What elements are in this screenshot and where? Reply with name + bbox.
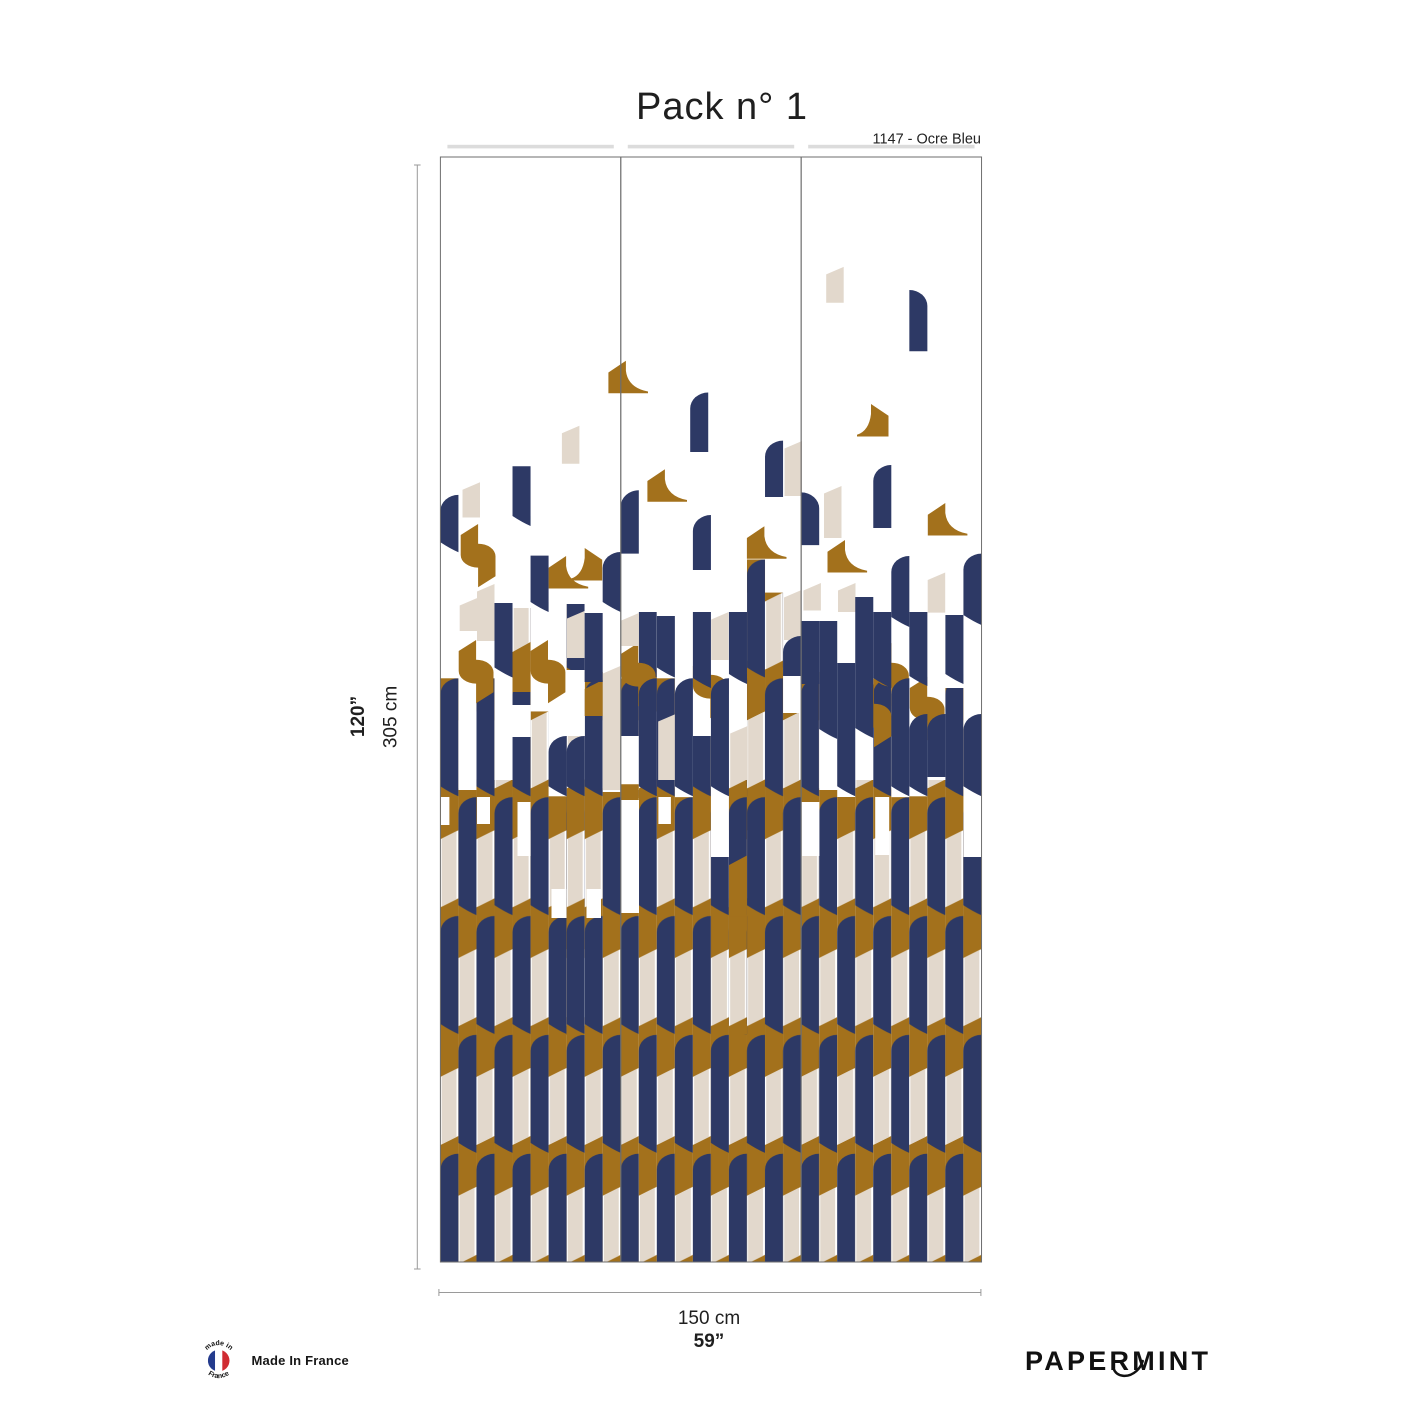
svg-text:59”: 59”: [694, 1331, 725, 1352]
svg-text:PAPERMINT: PAPERMINT: [1025, 1346, 1209, 1376]
svg-text:150 cm: 150 cm: [678, 1308, 740, 1329]
svg-text:305 cm: 305 cm: [381, 686, 402, 748]
svg-text:Pack n° 1: Pack n° 1: [636, 86, 808, 128]
svg-text:Made In France: Made In France: [252, 1353, 349, 1368]
svg-text:120”: 120”: [348, 696, 369, 737]
svg-text:1147 - Ocre Bleu: 1147 - Ocre Bleu: [872, 132, 981, 148]
